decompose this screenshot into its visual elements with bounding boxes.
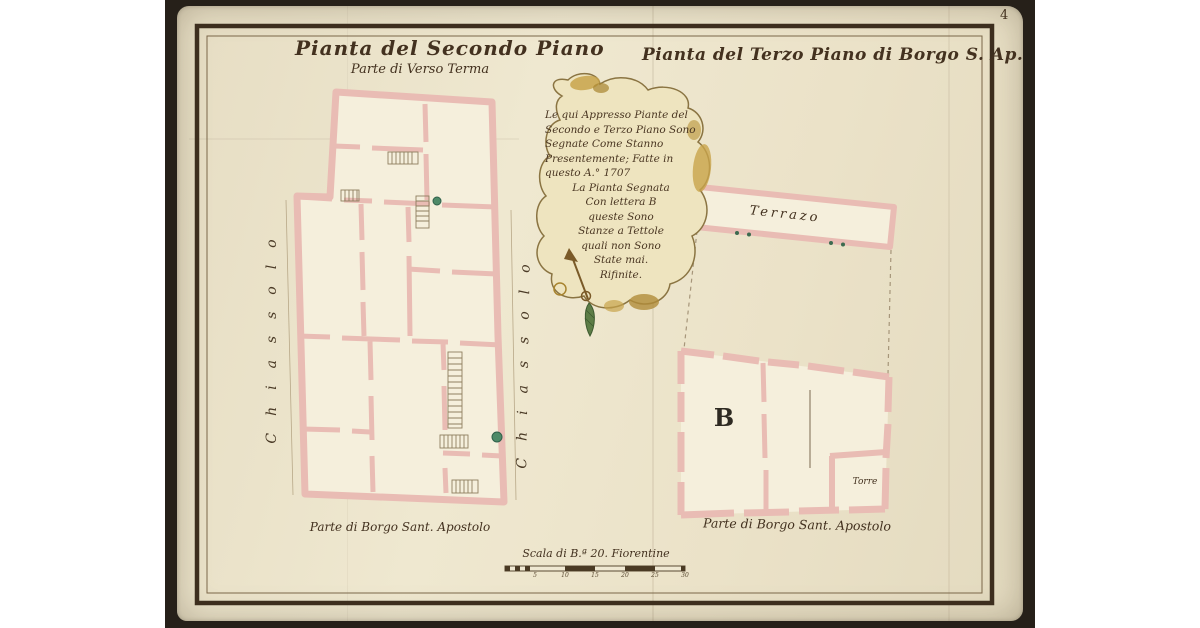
cartouche-line: quali non Sono xyxy=(545,239,697,254)
scale-tick: 15 xyxy=(587,572,603,579)
scale-tick: 10 xyxy=(557,572,573,579)
tower-label: Torre xyxy=(840,477,890,487)
scale-tick: 30 xyxy=(677,572,693,579)
plan-drawing xyxy=(0,0,1200,628)
scale-caption: Scala di B.ª 20. Fiorentine xyxy=(503,547,689,560)
cartouche-line: La Pianta Segnata xyxy=(545,181,697,196)
cartouche-line: Rifinite. xyxy=(545,268,697,283)
caption-borgo-left: Parte di Borgo Sant. Apostolo xyxy=(278,520,522,534)
cartouche-line: queste Sono xyxy=(545,210,697,225)
page-canvas: 4 Pianta del Secondo Piano Parte di Vers… xyxy=(0,0,1200,628)
title-terzo-piano: Pianta del Terzo Piano di Borgo S. Ap. xyxy=(642,45,1002,65)
scale-tick: 5 xyxy=(527,572,543,579)
cartouche-line: Secondo e Terzo Piano Sono xyxy=(545,123,697,138)
scale-bar xyxy=(505,566,685,571)
street-label-chiassolo-left: Chiassolo xyxy=(264,183,280,483)
folio-number: 4 xyxy=(1000,8,1008,23)
cartouche-line: Stanze a Tettole xyxy=(545,224,697,239)
scale-tick-labels: 5 10 15 20 25 30 xyxy=(505,572,691,580)
room-b-label: B xyxy=(706,403,742,432)
scale-tick: 25 xyxy=(647,572,663,579)
scale-tick: 20 xyxy=(617,572,633,579)
cartouche-inscription: Le qui Appresso Piante del Secondo e Ter… xyxy=(545,108,697,282)
subtitle-verso-terma: Parte di Verso Terma xyxy=(330,62,510,77)
cartouche-line: Segnate Come Stanno xyxy=(545,137,697,152)
floor-plan-secondo xyxy=(297,92,504,502)
cartouche-line: Le qui Appresso Piante del xyxy=(545,108,697,123)
title-secondo-piano: Pianta del Secondo Piano xyxy=(295,36,540,60)
floor-plan-terzo xyxy=(681,351,889,515)
cartouche-line: State mai. xyxy=(545,253,697,268)
cartouche-line: Presentemente; Fatte in xyxy=(545,152,697,167)
cartouche-line: Con lettera B xyxy=(545,195,697,210)
dashed-connectors xyxy=(684,231,891,374)
cartouche-line: questo A.° 1707 xyxy=(545,166,697,181)
